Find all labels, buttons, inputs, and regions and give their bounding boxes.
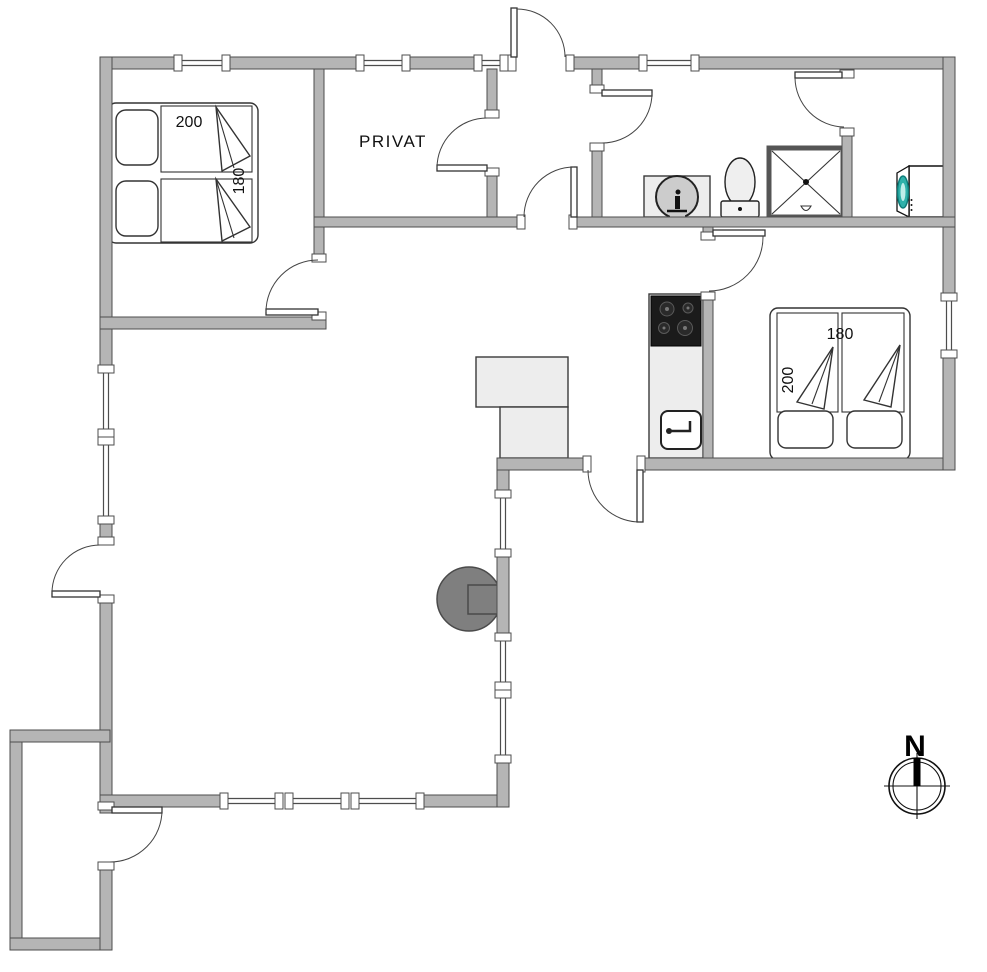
window <box>495 633 511 690</box>
compass-rose: N <box>884 730 950 819</box>
privat-room-door <box>437 110 499 176</box>
window <box>98 365 114 437</box>
stove-cooktop-icon <box>651 296 701 346</box>
entrance-door <box>508 8 574 71</box>
window <box>495 690 511 763</box>
kitchen-counter <box>649 294 703 458</box>
privat-room-label: PRIVAT <box>359 132 427 151</box>
kitchen-sink-icon <box>661 411 701 449</box>
floor-plan-svg: 200 180 180 200 <box>0 0 987 972</box>
left-exterior-door <box>52 537 114 603</box>
window <box>639 55 699 71</box>
window <box>495 490 511 557</box>
bedroom-top-left-door <box>266 254 326 320</box>
bathroom-sink-icon <box>644 176 710 218</box>
kitchen-island <box>476 357 568 458</box>
compass-north-label: N <box>904 730 926 763</box>
window <box>174 55 230 71</box>
double-bed-top-left: 200 180 <box>108 103 258 243</box>
bedroom-right-door <box>701 230 765 300</box>
washing-machine-icon <box>897 166 947 217</box>
window <box>220 793 283 809</box>
toilet-icon <box>721 158 759 217</box>
utility-room-door <box>795 70 854 136</box>
bed-top-left-length-label: 180 <box>231 168 248 195</box>
hallway-living-door <box>517 167 577 229</box>
bed-top-left-width-label: 200 <box>176 114 203 131</box>
wood-stove-icon <box>437 567 504 631</box>
floor-plan: 200 180 180 200 <box>0 0 987 972</box>
window <box>351 793 424 809</box>
bathroom-door <box>590 85 652 151</box>
bed-right-width-label: 180 <box>827 326 854 343</box>
window <box>356 55 410 71</box>
shower-icon <box>769 148 843 217</box>
kitchen-living-door <box>583 456 645 522</box>
double-bed-right: 180 200 <box>770 308 910 460</box>
window <box>98 437 114 524</box>
bed-right-length-label: 200 <box>780 367 797 394</box>
window <box>941 293 957 358</box>
window <box>285 793 349 809</box>
